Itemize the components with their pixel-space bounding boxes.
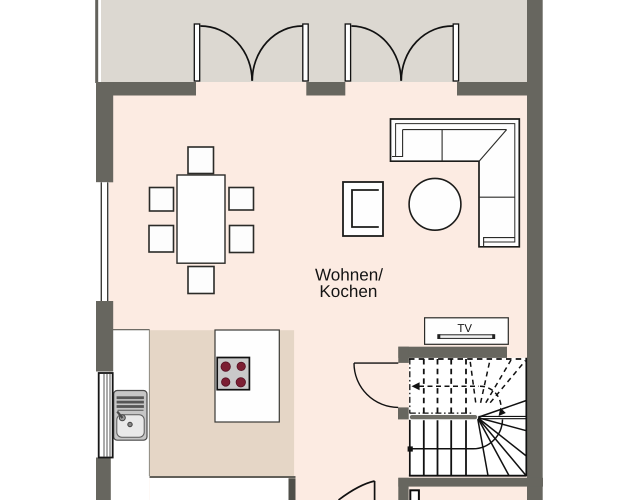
svg-text:Kochen: Kochen xyxy=(319,282,377,301)
svg-text:TV: TV xyxy=(457,323,472,335)
